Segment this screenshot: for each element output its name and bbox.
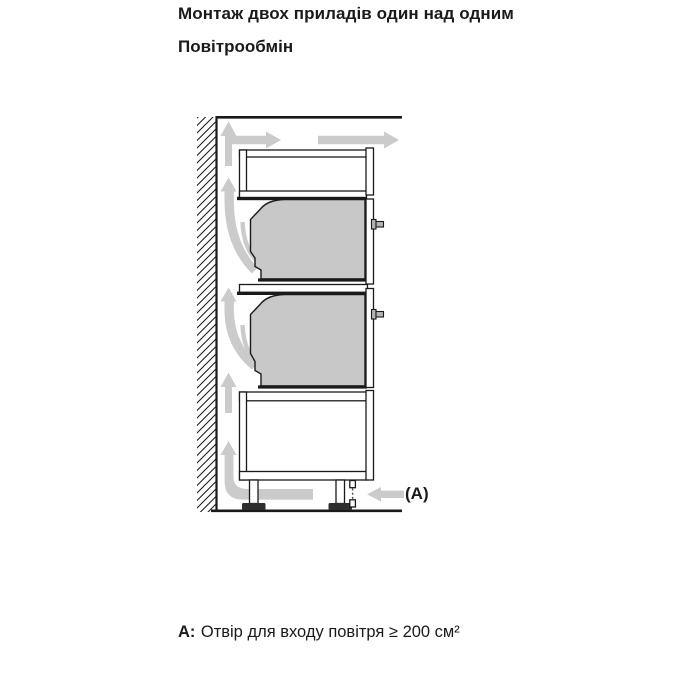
footnote: A:Отвір для входу повітря ≥ 200 см² [178,623,460,642]
bend-arrow-head [221,441,237,455]
wall-hatching [197,117,217,512]
diagram-drawing [0,0,700,700]
base-cabinet-top-panel [240,392,367,401]
lower-oven-body [251,295,366,387]
cabinet-right-leg [336,480,345,504]
manual-page: Монтаж двох приладів один над одним Пові… [0,0,700,700]
air-inlet-left-arrow [367,487,404,502]
cabinet-left-foot [242,503,266,510]
airflow-right-arrow-long [318,132,399,149]
upper-oven-handle-collar-icon [372,220,377,230]
cabinet-left-leg [250,480,259,504]
airflow-up-arrow-mid [221,373,237,414]
plinth-marker-bottom [350,500,356,507]
footnote-text: Отвір для входу повітря ≥ 200 см² [201,623,460,641]
curved-arrow-head [221,178,237,192]
upper-oven-bottom-bar [258,278,367,281]
upper-oven [237,197,384,284]
top-compartment-top-panel [240,150,367,157]
lower-oven [237,289,384,389]
base-cabinet-front-strip [366,391,374,481]
lower-oven-front-strip [366,289,374,388]
upper-oven-front-strip [366,199,374,284]
base-cabinet-bottom-panel [240,472,367,481]
airflow-inlet-bend-arrow [221,441,314,500]
lower-oven-handle-icon [376,312,384,318]
top-compartment-front-strip [366,148,374,195]
lower-oven-bottom-bar [258,385,367,388]
top-compartment [240,148,374,198]
base-cabinet-left-panel [240,392,247,480]
upper-oven-handle-icon [376,222,384,228]
plinth-marker-top [350,481,356,488]
cabinet-right-foot [329,503,353,510]
footnote-key: A: [178,623,195,641]
curved-arrow-head [221,288,237,302]
air-inlet-label: (A) [405,485,429,502]
installation-diagram: (A) [0,0,700,700]
upper-oven-body [251,200,366,280]
lower-oven-handle-collar-icon [372,310,377,320]
